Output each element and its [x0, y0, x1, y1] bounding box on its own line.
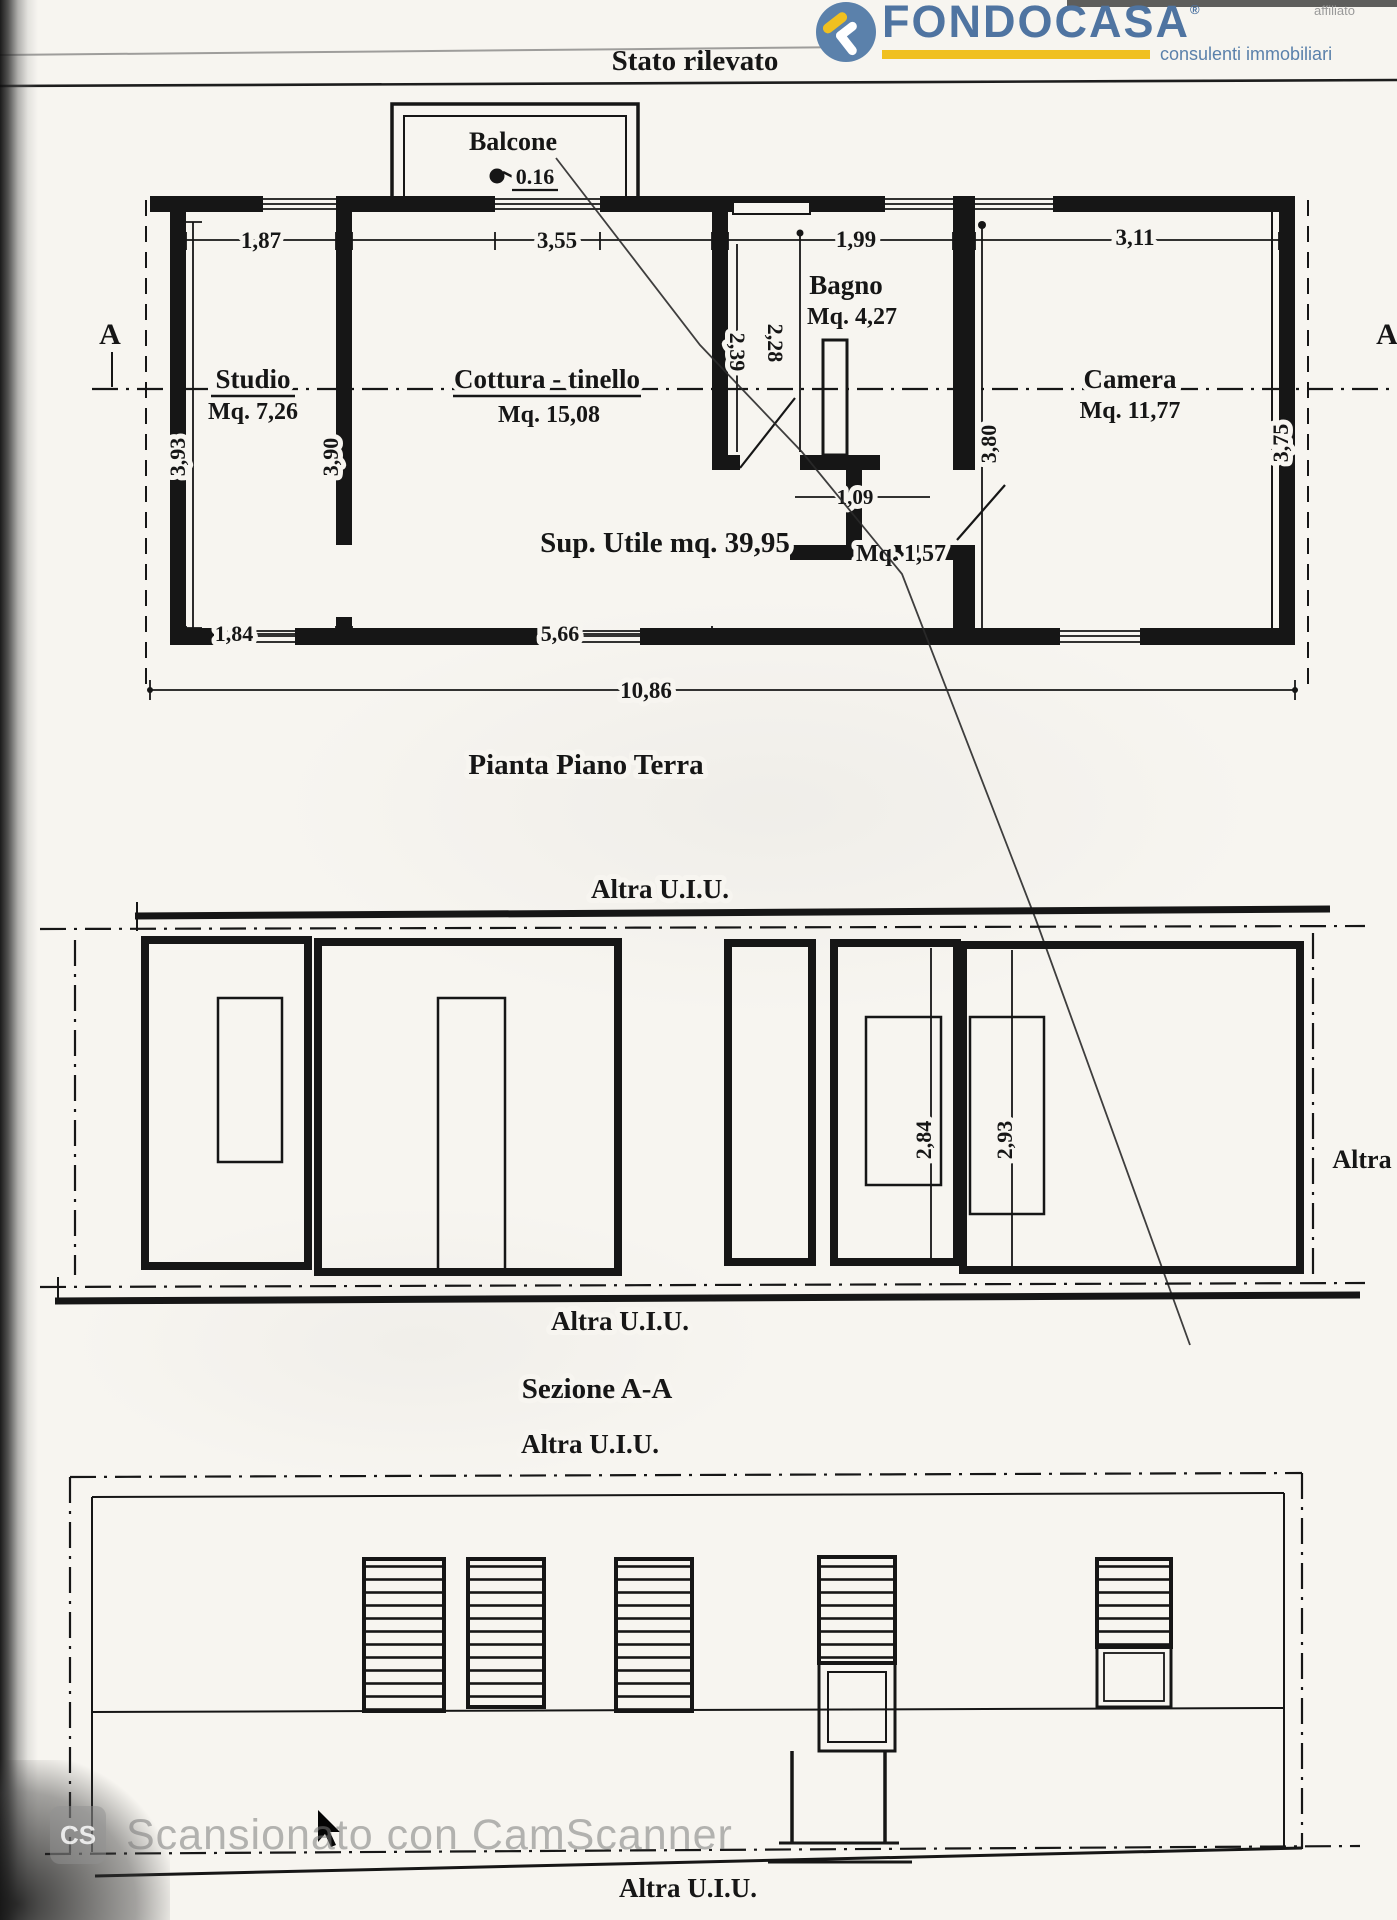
dim-w-studio: 1,87: [241, 228, 281, 253]
room-cottura: Cottura - tinello: [454, 364, 640, 394]
dim-w-studio-win: 1,84: [215, 621, 254, 646]
section-view: Altra U.I.U. 2,84 2,93 Altra Altra U.I.U…: [40, 874, 1392, 1405]
section-dim-left: 2,84: [911, 1121, 936, 1160]
dim-h-studio: 3,93: [165, 438, 190, 477]
plan-summary: Sup. Utile mq. 39,95: [540, 527, 790, 559]
room-cottura-area: Mq. 15,08: [498, 402, 600, 428]
dim-h-cottura: 3,90: [318, 438, 343, 477]
elevation-porch: [768, 1751, 912, 1862]
room-bagno: Bagno: [809, 270, 883, 300]
fondocasa-badge-icon: [816, 1, 876, 63]
dim-h-bagno-1: 2,39: [725, 333, 750, 372]
dim-w-bagno: 1,99: [836, 227, 876, 252]
elevation-windows: [364, 1557, 1171, 1711]
room-bagno-area: Mq. 4,27: [807, 304, 897, 330]
room-camera-area: Mq. 11,77: [1080, 398, 1181, 424]
section-label-right: Altra: [1332, 1145, 1391, 1174]
section-title: Sezione A-A: [522, 1373, 673, 1405]
registered-mark: ®: [1190, 2, 1200, 17]
balcony-value: 0.16: [516, 164, 555, 189]
header-rule: [0, 80, 1397, 86]
room-studio: Studio: [215, 364, 290, 394]
brand-wordmark: FONDOCASA: [882, 0, 1190, 44]
plan-title: Pianta Piano Terra: [468, 749, 704, 781]
dim-w-disimpegno: 1,09: [837, 485, 874, 509]
balcony-symbol: [490, 169, 505, 184]
camscanner-logo-icon: CS: [50, 1806, 106, 1864]
dim-w-cottura: 3,55: [537, 228, 577, 253]
dim-h-camera-r: 3,75: [1268, 424, 1293, 463]
section-label-above: Altra U.I.U.: [591, 874, 729, 904]
section-marker-left: A: [99, 318, 121, 351]
plan-windows: [225, 199, 1140, 642]
elevation-label-above: Altra U.I.U.: [521, 1429, 659, 1459]
room-camera: Camera: [1084, 364, 1177, 394]
scanned-drawing: Stato rilevato Balcone 0.16: [0, 0, 1397, 1920]
dim-w-total: 10,86: [620, 678, 672, 703]
section-rooms: [145, 940, 1300, 1272]
logo-tagline: consulenti immobiliari: [1160, 44, 1332, 65]
balcony-label: Balcone: [469, 127, 557, 156]
floor-plan: Balcone 0.16: [92, 104, 1397, 781]
page-title: Stato rilevato: [612, 45, 779, 77]
camscanner-watermark: CS Scansionato con CamScanner: [50, 1806, 733, 1864]
dim-w-camera: 3,11: [1116, 225, 1155, 250]
room-studio-area: Mq. 7,26: [208, 399, 298, 425]
logo-accent-bar: [882, 50, 1150, 59]
section-dim-right: 2,93: [992, 1121, 1017, 1160]
dim-w-cottura-b: 5,66: [541, 621, 580, 646]
camscanner-text: Scansionato con CamScanner: [126, 1811, 733, 1860]
dim-h-bagno-2: 2,28: [763, 324, 788, 363]
scanner-shadow-left: [0, 0, 38, 1920]
elevation-label-below: Altra U.I.U.: [619, 1873, 757, 1903]
section-label-below: Altra U.I.U.: [551, 1306, 689, 1336]
fondocasa-logo: affiliato FONDOCASA ® consulenti immobil…: [816, 0, 1391, 65]
affiliato-label: affiliato: [1314, 3, 1355, 18]
dim-h-camera: 3,80: [976, 425, 1001, 464]
plan-room-labels: Studio Mq. 7,26 Cottura - tinello Mq. 15…: [208, 270, 1180, 567]
room-disimpegno-area: Mq. 1,57: [856, 541, 946, 567]
section-marker-right: A: [1376, 318, 1397, 351]
bath-wall-niche: [733, 202, 810, 214]
elevation-door-and-lower-window: [819, 1647, 1171, 1751]
